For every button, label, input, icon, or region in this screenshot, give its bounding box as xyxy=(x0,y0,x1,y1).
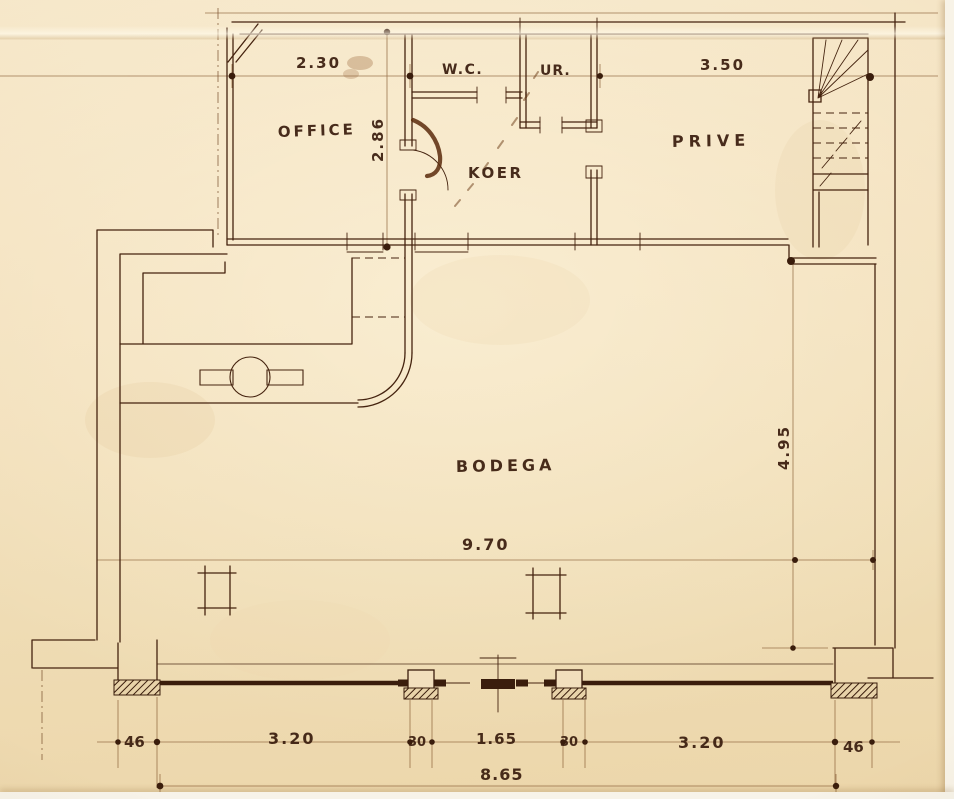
door-swing-arc xyxy=(413,150,448,190)
dim-office-depth: 2.86 xyxy=(369,117,387,162)
room-label-koer: KOER xyxy=(468,164,524,182)
table-circle xyxy=(230,357,270,397)
dim-front-center-bay: 1.65 xyxy=(476,730,517,748)
room-label-wc: W.C. xyxy=(442,62,483,78)
dim-front-left-pier: 46 xyxy=(124,733,145,751)
dim-bodega-length: 9.70 xyxy=(462,535,509,554)
scan-edge-right xyxy=(945,0,954,799)
dimension-dots xyxy=(115,29,876,790)
room-label-ur: UR. xyxy=(540,63,571,79)
dim-bodega-depth: 4.95 xyxy=(775,425,793,470)
dim-front-right-pier: 46 xyxy=(843,738,864,756)
door-jambs-prive xyxy=(586,120,602,178)
column-right xyxy=(526,568,566,619)
dim-front-total: 8.65 xyxy=(480,765,523,784)
room-label-bodega: BODEGA xyxy=(456,455,556,476)
dim-front-left-mullion: 30 xyxy=(408,735,426,750)
pier-left-hatch xyxy=(114,680,160,695)
dim-front-left-bay: 3.20 xyxy=(268,729,315,748)
column-left xyxy=(198,566,236,615)
mullion-right-box xyxy=(556,670,582,689)
paper-crease xyxy=(0,26,954,40)
dim-front-right-mullion: 30 xyxy=(560,735,578,750)
dim-front-right-bay: 3.20 xyxy=(678,733,725,752)
scan-edge-bottom xyxy=(0,792,954,799)
dim-office-width: 2.30 xyxy=(296,54,341,72)
walls-layer xyxy=(32,13,933,684)
mullion-left-box xyxy=(408,670,434,689)
door-jambs-office xyxy=(400,140,416,200)
storefront xyxy=(114,670,877,699)
dim-prive-width: 3.50 xyxy=(700,56,745,74)
pier-right-hatch xyxy=(831,683,877,698)
floor-plan-svg: OFFICE W.C. UR. PRIVE KOER BODEGA 2.30 2… xyxy=(0,0,954,799)
table-wings xyxy=(200,370,303,385)
room-label-office: OFFICE xyxy=(278,120,357,141)
room-label-prive: PRIVE xyxy=(672,131,751,151)
stair-winders xyxy=(818,40,868,98)
floor-plan: OFFICE W.C. UR. PRIVE KOER BODEGA 2.30 2… xyxy=(0,0,954,799)
